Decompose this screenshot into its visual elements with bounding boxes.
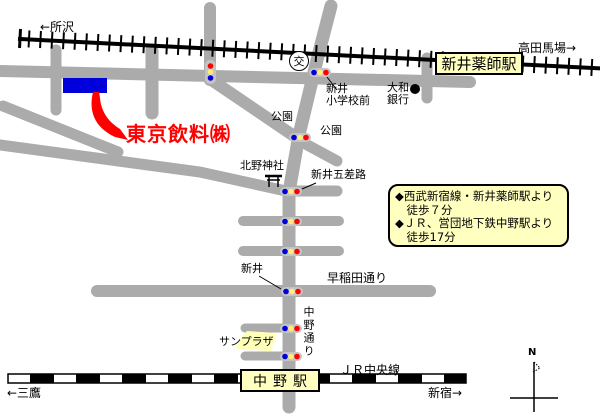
label-park-2: 公園 (320, 125, 342, 137)
company-building (63, 78, 107, 93)
label-nakano-dori: 中野通り (302, 306, 314, 362)
traffic-signal (280, 187, 302, 196)
station-box-nakano: 中野駅 (240, 369, 320, 392)
label-arai-elementary: 新井 小学校前 (326, 83, 370, 107)
direction-takadanobaba: 高田馬場→ (518, 42, 576, 55)
traffic-signal-vertical (205, 60, 216, 84)
compass-north-label: N (528, 347, 536, 358)
company-arrow-icon (92, 92, 128, 140)
traffic-signal (280, 247, 302, 256)
traffic-signal (281, 287, 303, 296)
label-park-1: 公園 (271, 111, 293, 123)
direction-shinjuku: 新宿→ (428, 387, 462, 400)
label-jr-chuo-line: ＪＲ中央線 (340, 364, 400, 377)
traffic-signal (280, 217, 302, 226)
traffic-signal (289, 133, 311, 142)
direction-tokorozawa: ←所沢 (40, 21, 74, 34)
access-map: ←所沢 高田馬場→ ←三鷹 新宿→ 新井薬師駅 中野駅 交 新井 小学校前 大和… (0, 0, 600, 420)
label-daiwa-bank: 大和 銀行 (387, 82, 409, 106)
traffic-signal (280, 352, 302, 361)
compass-icon (510, 362, 558, 412)
direction-mitaka: ←三鷹 (7, 387, 41, 400)
station-box-arai-yakushi: 新井薬師駅 (435, 52, 523, 75)
koban-icon: 交 (289, 51, 309, 71)
label-arai: 新井 (241, 263, 263, 275)
daiwa-bank-dot (410, 84, 420, 94)
railway-end-cap (20, 29, 21, 48)
company-name: 東京飲料㈱ (126, 118, 231, 147)
label-waseda-dori: 早稲田通り (327, 272, 387, 285)
traffic-signal (280, 324, 302, 333)
traffic-signal (309, 68, 331, 77)
label-arai-gosaro: 新井五差路 (311, 169, 366, 181)
label-sunplaza: サンプラザ (219, 336, 274, 348)
label-kitano-shrine: 北野神社 (240, 160, 284, 172)
road-stub-park (300, 141, 337, 161)
access-info-box: ◆西武新宿線・新井薬師駅より 徒歩７分 ◆ＪＲ、営団地下鉄中野駅より 徒歩17分 (388, 184, 569, 247)
